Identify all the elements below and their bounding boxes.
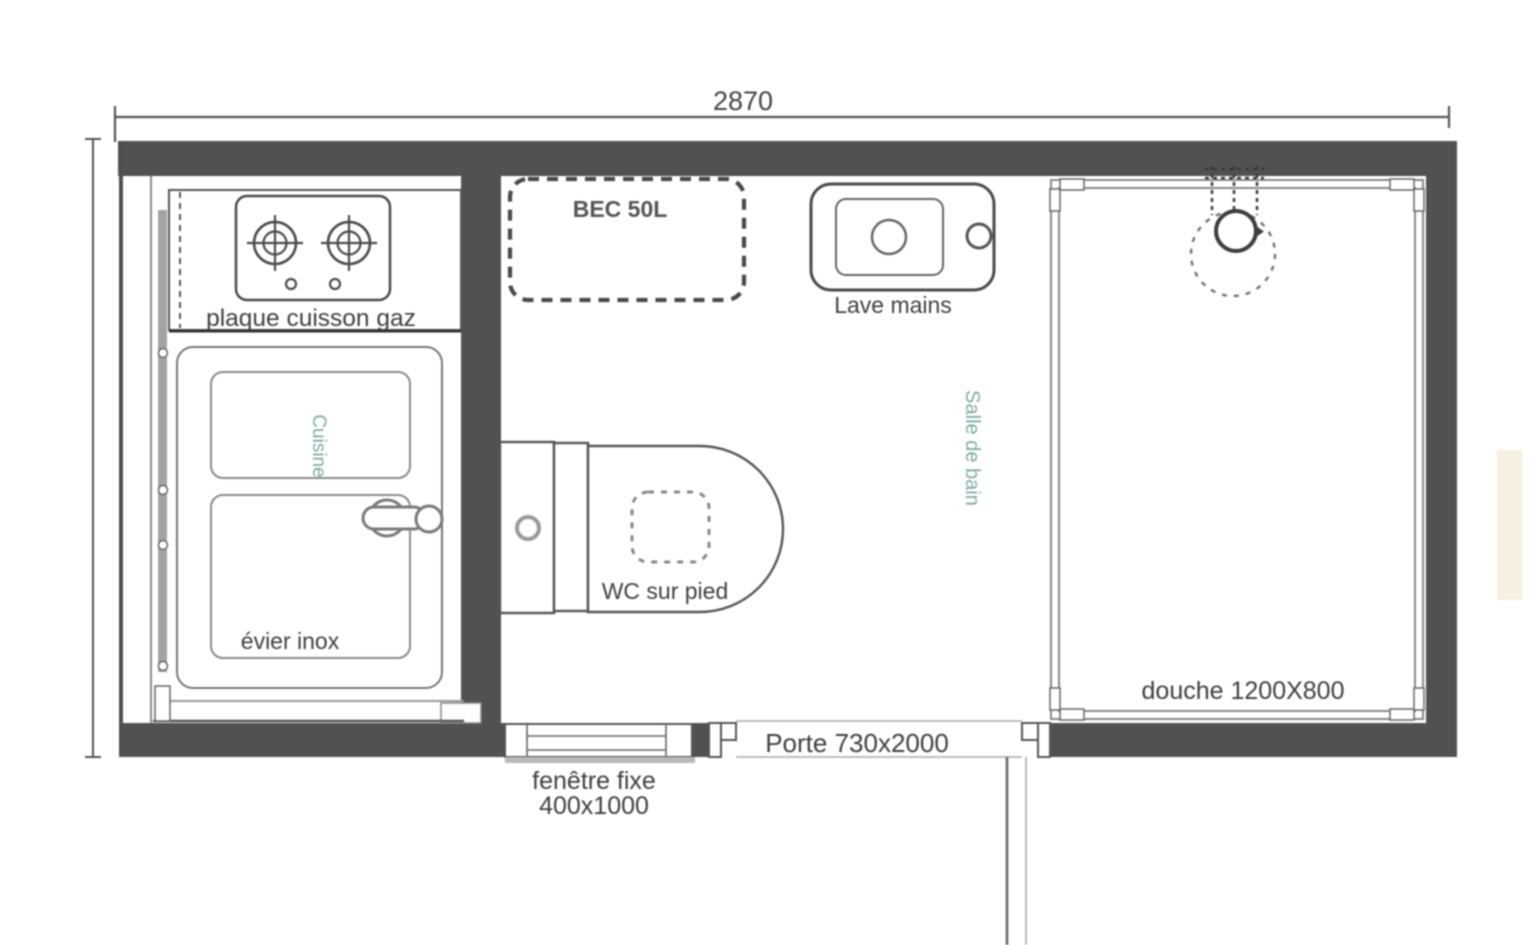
svg-text:Cuisine: Cuisine <box>308 414 329 477</box>
svg-text:Lave mains: Lave mains <box>834 292 952 318</box>
svg-text:400x1000: 400x1000 <box>539 792 649 820</box>
svg-text:2870: 2870 <box>713 86 773 116</box>
svg-text:fenêtre fixe: fenêtre fixe <box>532 767 656 795</box>
svg-text:Porte 730x2000: Porte 730x2000 <box>765 728 949 758</box>
svg-text:Salle de bain: Salle de bain <box>961 390 983 506</box>
svg-text:douche 1200X800: douche 1200X800 <box>1142 677 1345 705</box>
svg-text:WC sur pied: WC sur pied <box>602 578 729 604</box>
svg-text:évier inox: évier inox <box>241 628 340 654</box>
svg-text:plaque cuisson gaz: plaque cuisson gaz <box>206 305 416 332</box>
svg-text:BEC 50L: BEC 50L <box>573 196 668 222</box>
